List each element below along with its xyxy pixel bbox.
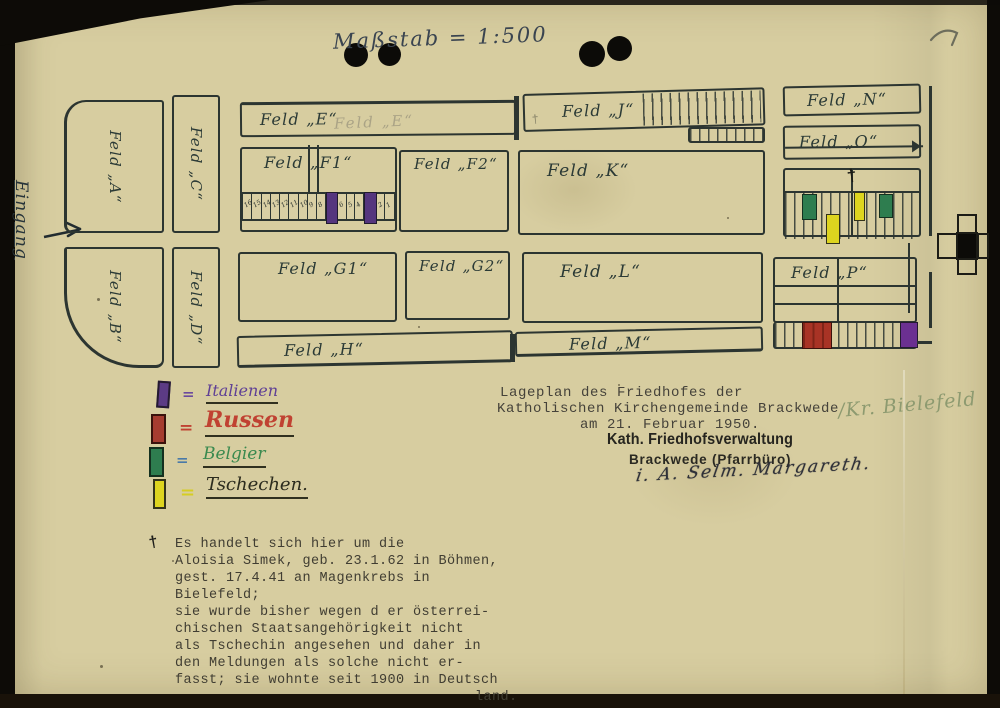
field-f1-box: Feld „F1“ 16 15 14 13 12 11 10 9 8 6 5 4… <box>240 147 397 232</box>
field-f2-label: Feld „F2“ <box>414 155 498 173</box>
field-e-box: Feld „E“ Feld „E“ <box>240 100 516 137</box>
field-b-label: Feld „B“ <box>106 270 124 344</box>
field-o-grave-rows: † <box>783 168 921 237</box>
path-divider-line <box>514 96 519 140</box>
footnote-line: Bielefeld; <box>175 587 518 604</box>
field-k-box: Feld „K“ <box>518 150 765 235</box>
field-h-box: Feld „H“ <box>237 330 514 368</box>
field-e-ghost-label: Feld „E“ <box>334 111 415 132</box>
belgian-grave-cell <box>879 194 893 218</box>
cross-arm-right <box>977 233 989 259</box>
field-g2-box: Feld „G2“ <box>405 251 510 320</box>
italian-grave-cell <box>900 322 918 348</box>
stamp-line-1: Kath. Friedhofsverwaltung <box>607 431 793 449</box>
grave-cell: 6 <box>338 194 347 219</box>
legend-equals: = <box>182 385 195 403</box>
footnote-line: Aloisia Simek, geb. 23.1.62 in Böhmen, <box>175 553 518 570</box>
field-l-label: Feld „L“ <box>560 262 641 282</box>
grave-cell: 5 <box>347 194 356 219</box>
paper-speck <box>100 665 103 668</box>
paper-speck <box>172 560 174 562</box>
scanned-document: Maßstab = 1:500 Eingang Feld „A“ Feld „B… <box>0 0 1000 708</box>
field-j-box: Feld „J“ <box>522 87 765 132</box>
field-p-box: Feld „P“ <box>773 257 917 323</box>
paper-speck <box>727 217 729 219</box>
footnote-line: chischen Staatsangehörigkeit nicht <box>175 621 518 638</box>
field-n-box: Feld „N“ <box>783 84 922 117</box>
field-c-box: Feld „C“ <box>172 95 220 233</box>
footnote-line: gest. 17.4.41 an Magenkrebs in <box>175 570 518 587</box>
cross-arm-top <box>957 214 977 234</box>
grave-cell-number <box>328 196 336 201</box>
field-b-box: Feld „B“ <box>64 247 164 368</box>
legend-swatch-italians <box>156 381 171 409</box>
field-a-box: Feld „A“ <box>64 100 164 233</box>
field-l-box: Feld „L“ <box>522 252 763 323</box>
field-a-label: Feld „A“ <box>106 130 124 204</box>
grave-cell: 2 <box>377 194 386 219</box>
field-g1-box: Feld „G1“ <box>238 252 397 322</box>
boundary-line <box>929 272 932 328</box>
field-e-label: Feld „E“ <box>260 109 338 129</box>
czech-grave-cell <box>826 214 840 244</box>
legend-equals: = <box>179 418 193 438</box>
field-k-label: Feld „K“ <box>547 161 629 181</box>
inner-path-line <box>317 145 319 193</box>
legend-equals: = <box>180 482 195 503</box>
belgian-grave-cell <box>802 194 817 220</box>
field-d-label: Feld „D“ <box>187 270 205 345</box>
italian-grave-cell <box>326 192 338 224</box>
cross-center-filled <box>956 232 978 260</box>
entrance-label: Eingang <box>11 180 31 260</box>
field-p-label: Feld „P“ <box>791 263 868 282</box>
grave-cell: 11 <box>289 194 298 219</box>
legend-swatch-belgians <box>149 447 164 477</box>
legend-label-czechs: Tschechen. <box>206 474 308 499</box>
legend-swatch-russians <box>151 414 166 444</box>
inner-line <box>775 303 915 305</box>
boundary-line <box>917 341 932 344</box>
inner-path-line <box>308 145 310 193</box>
grave-cell: 4 <box>355 194 364 219</box>
grave-cell: 9 <box>308 194 317 219</box>
legend-label-russians: Russen <box>205 407 294 437</box>
field-m-label: Feld „M“ <box>569 333 652 354</box>
field-d-box: Feld „D“ <box>172 247 220 368</box>
field-f2-box: Feld „F2“ <box>399 150 509 232</box>
paper-speck <box>618 384 620 386</box>
footnote-line: sie wurde bisher wegen d er österrei- <box>175 604 518 621</box>
czech-grave-cell-annotated <box>854 192 865 221</box>
field-h-label: Feld „H“ <box>284 339 365 360</box>
hatched-area <box>643 90 762 125</box>
field-g1-label: Feld „G1“ <box>278 259 368 278</box>
grave-cell-number: 1 <box>385 199 396 210</box>
f1-grave-row: 16 15 14 13 12 11 10 9 8 6 5 4 2 1 <box>241 192 396 221</box>
legend-equals: = <box>176 451 189 469</box>
legend-swatch-czechs <box>153 479 166 509</box>
grave-cell: 1 <box>385 194 394 219</box>
grave-cell: 16 <box>243 194 252 219</box>
grave-cell-number <box>367 196 375 201</box>
field-j-hatched-extension <box>688 127 765 143</box>
grave-cell: 13 <box>271 194 280 219</box>
cross-arm-left <box>937 233 958 259</box>
russian-grave-cells <box>802 322 832 349</box>
title-line-2: Katholischen Kirchengemeinde Brackwede <box>497 402 839 418</box>
field-p-grave-row <box>773 322 917 349</box>
field-n-label: Feld „N“ <box>807 89 888 110</box>
center-divider-line <box>837 259 839 321</box>
paper-speck <box>418 326 420 328</box>
cross-symbol <box>937 214 989 276</box>
field-o-box: Feld „O“ <box>783 124 921 159</box>
boundary-line <box>929 86 932 236</box>
footnote-line: den Meldungen als solche nicht er- <box>175 655 518 672</box>
title-block: Lageplan des Friedhofes der Katholischen… <box>497 386 839 433</box>
field-c-label: Feld „C“ <box>187 127 205 201</box>
italian-grave-cell <box>364 192 376 224</box>
title-line-1: Lageplan des Friedhofes der <box>500 386 839 402</box>
grave-cell: 15 <box>252 194 261 219</box>
legend-label-italians: Italienen <box>206 381 278 404</box>
grave-cell: 12 <box>280 194 289 219</box>
field-m-box: Feld „M“ <box>515 326 764 357</box>
paper-speck <box>97 298 100 301</box>
field-g2-label: Feld „G2“ <box>419 257 504 275</box>
field-o-label: Feld „O“ <box>799 132 879 152</box>
footnote-line: als Tschechin angesehen und daher in <box>175 638 518 655</box>
inner-line <box>775 285 915 287</box>
grave-cross-icon: † <box>846 165 858 186</box>
footnote-line: land. <box>475 689 518 706</box>
grave-cell: 10 <box>299 194 308 219</box>
legend-label-belgians: Belgier <box>203 444 266 468</box>
arrow-head-icon <box>912 140 921 152</box>
footnote-line: Es handelt sich hier um die <box>175 536 518 553</box>
footnote-block: Es handelt sich hier um die Aloisia Sime… <box>175 536 518 706</box>
grave-cell: 14 <box>262 194 271 219</box>
boundary-line <box>908 243 910 313</box>
cross-arm-bottom <box>957 258 977 275</box>
footnote-line: fasst; sie wohnte seit 1900 in Deutsch <box>175 672 518 689</box>
field-j-label: Feld „J“ <box>562 100 635 121</box>
grave-cell: 8 <box>317 194 326 219</box>
